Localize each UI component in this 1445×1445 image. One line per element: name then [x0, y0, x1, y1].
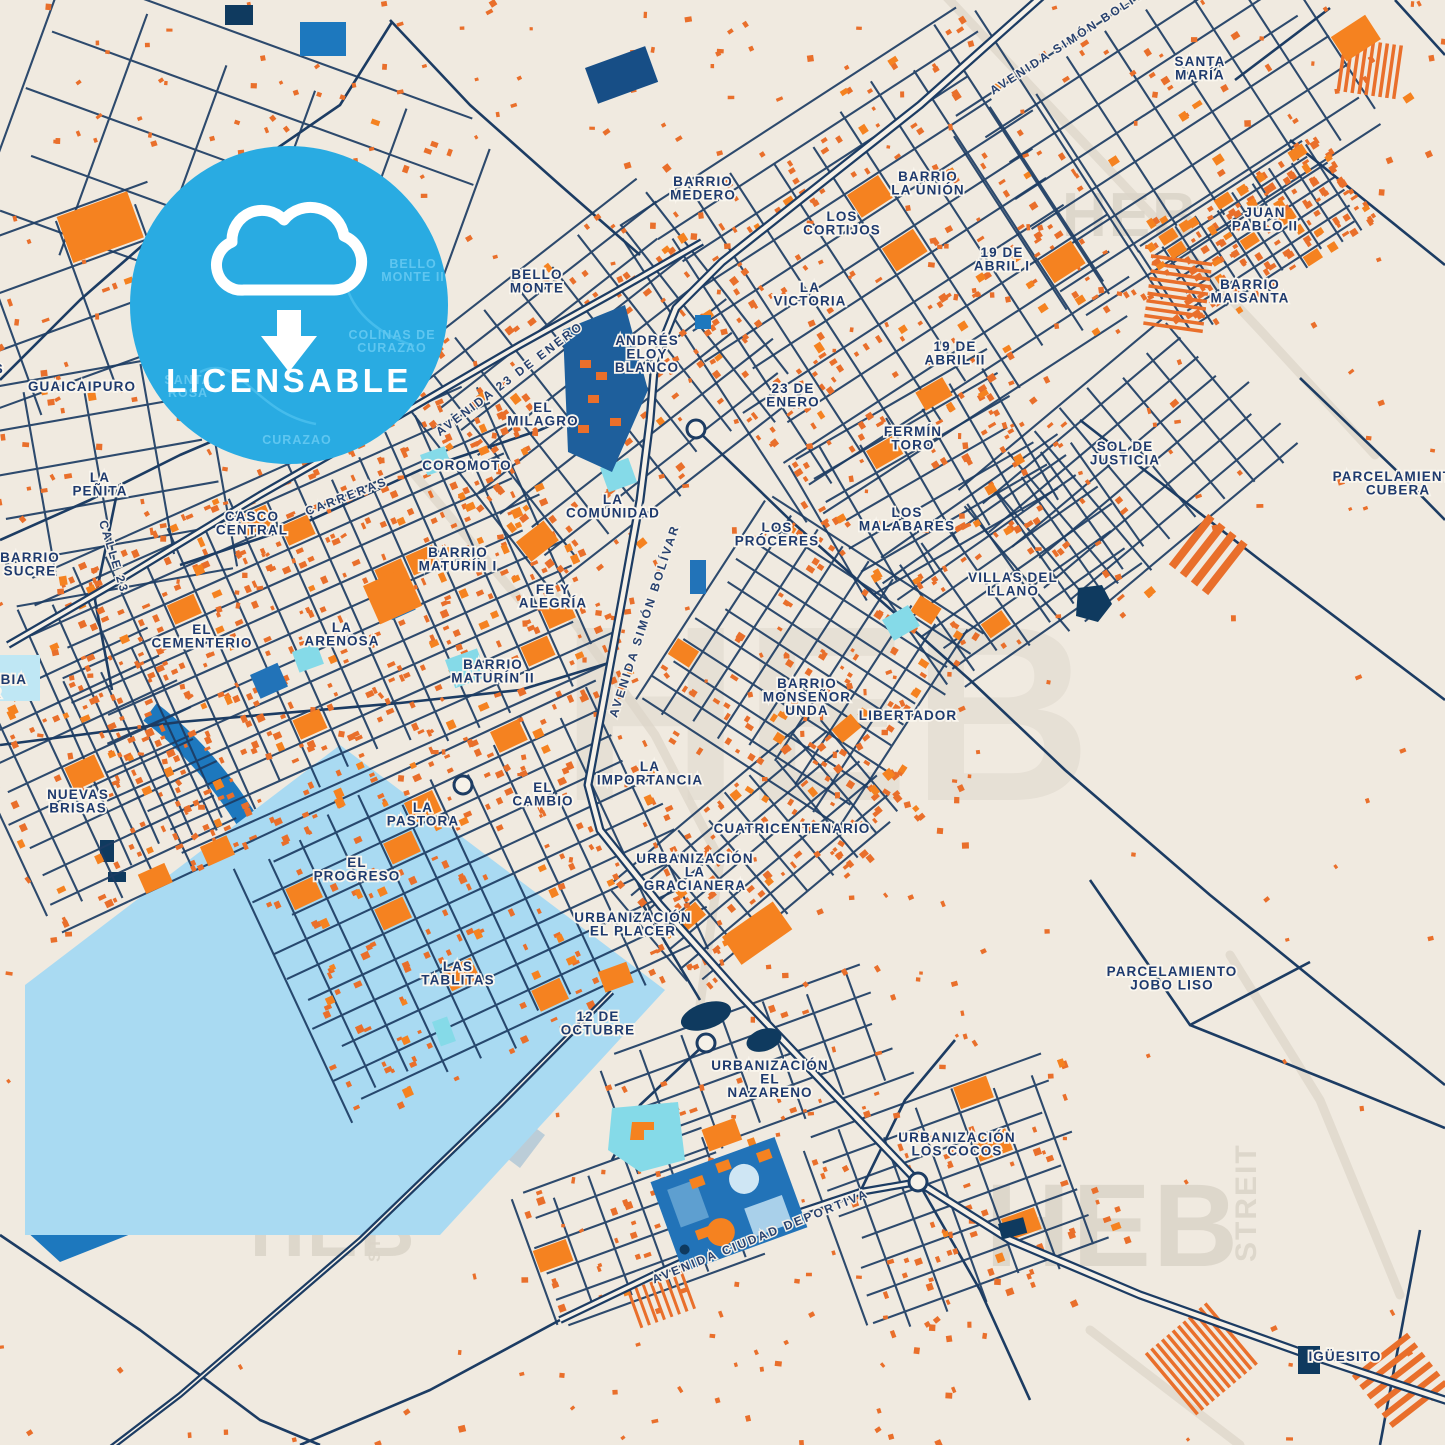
area-label: BARRIOLA UNIÓN — [891, 169, 965, 198]
roundabout — [687, 420, 705, 438]
area-label: NUEVASBRISAS — [47, 787, 109, 816]
map-poster: HEBHEBHEBSTREITHEBSTREITAVENIDA SIMÓN BO… — [0, 0, 1445, 1445]
area-label: BARRIOMEDERO — [670, 174, 736, 203]
area-label: GUAICAIPURO — [28, 379, 136, 394]
cloud-icon — [216, 207, 361, 290]
area-label: 23 DEENERO — [766, 381, 820, 410]
area-label: 19 DEABRIL II — [924, 339, 985, 368]
badge-ghost-label: BELLOMONTE II — [381, 257, 445, 284]
badge-label: LICENSABLE — [166, 362, 412, 399]
area-label: LIBERTADOR — [859, 708, 958, 723]
area-label: BARRIOMATURÍN I — [419, 545, 498, 574]
area-label: BELLOMONTE — [510, 267, 564, 296]
area-label: BARRIOMATURÍN II — [451, 657, 535, 686]
badge-ghost-label: CURAZAO — [262, 433, 332, 447]
area-label: SOL DEJUSTICIA — [1090, 439, 1160, 468]
area-label: CASCOCENTRAL — [216, 509, 288, 538]
area-label: IGÜESITO — [1308, 1349, 1381, 1364]
area-label: CUATRICENTENARIO — [714, 821, 871, 836]
area-label: URBANIZACIÓNLOS COCOS — [898, 1130, 1015, 1159]
roundabout — [454, 776, 472, 794]
city-map: HEBHEBHEBSTREITHEBSTREITAVENIDA SIMÓN BO… — [0, 0, 1445, 1445]
area-label: FERMÍNTORO — [884, 424, 942, 453]
area-label: 19 DEABRIL I — [974, 245, 1030, 274]
roundabout — [909, 1173, 927, 1191]
licensable-badge: BELLOMONTE IICOLINAS DECURAZAOSANTAROSAC… — [130, 146, 448, 464]
badge-ghost-label: COLINAS DECURAZAO — [348, 328, 435, 355]
area-label: BARRIOMAISANTA — [1210, 277, 1289, 306]
watermark: STREIT — [1230, 1143, 1263, 1262]
area-label: COROMOTO — [422, 458, 512, 473]
roundabout — [697, 1034, 715, 1052]
area-label: SANTAMARÍA — [1175, 54, 1226, 83]
area-label: BARRIOSUCRE — [0, 550, 60, 579]
area-label: URBANIZACIÓNEL PLACER — [574, 910, 691, 939]
